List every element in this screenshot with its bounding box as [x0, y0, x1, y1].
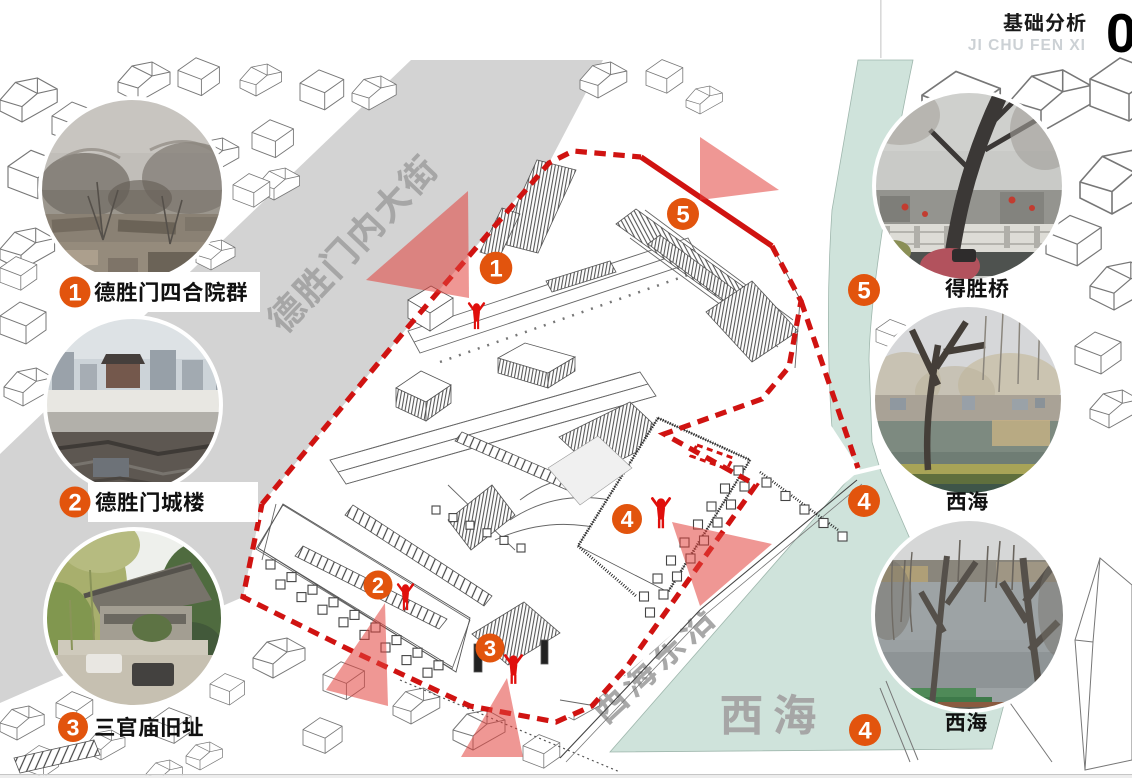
svg-text:1: 1: [489, 256, 502, 283]
svg-text:JI CHU FEN XI: JI CHU FEN XI: [968, 37, 1086, 54]
svg-text:3: 3: [484, 636, 496, 661]
svg-text:2: 2: [372, 573, 384, 598]
svg-text:3: 3: [67, 715, 80, 741]
svg-text:5: 5: [676, 202, 689, 229]
svg-text:4: 4: [621, 506, 634, 532]
svg-text:2: 2: [68, 490, 81, 517]
svg-text:01: 01: [1106, 2, 1132, 64]
svg-text:4: 4: [857, 489, 871, 516]
svg-text:4: 4: [858, 718, 872, 745]
svg-text:5: 5: [857, 278, 870, 305]
svg-text:1: 1: [68, 280, 81, 307]
